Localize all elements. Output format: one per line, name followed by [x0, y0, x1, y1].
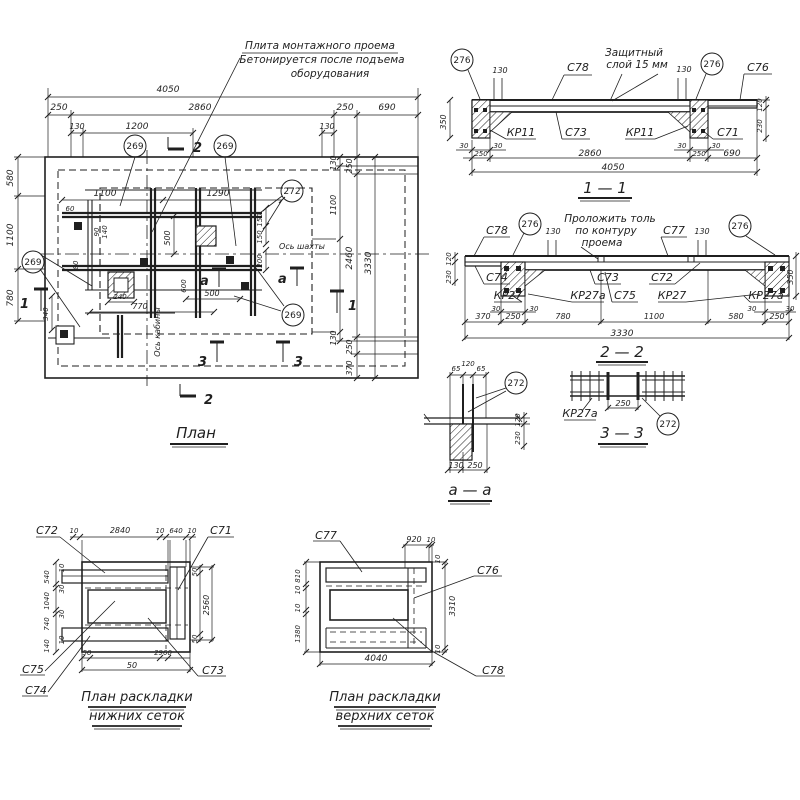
section-a-a: 65 120 65 120 230 130 250 272 а — а	[424, 360, 530, 504]
callout-269: 269	[124, 135, 146, 157]
dim-label: 130	[329, 155, 338, 170]
callout-label: 276	[731, 222, 748, 232]
frame-label-kp27: КР27	[658, 289, 686, 302]
dim-label: 240	[113, 293, 127, 301]
dim-label: 2860	[579, 149, 602, 159]
dim-label: 690	[723, 149, 740, 159]
saa-title: а — а	[449, 481, 492, 499]
callout-272: 272	[281, 180, 303, 202]
mesh-label-c73: С73	[565, 126, 587, 139]
dim-label: 30	[530, 305, 539, 313]
mesh-label-c75: С75	[614, 289, 636, 302]
dim-label: 50	[191, 634, 199, 643]
dim-label: 810	[294, 569, 302, 583]
callout-label: 269	[216, 142, 233, 152]
dim-label: 640	[169, 527, 183, 535]
callout-label: 272	[659, 420, 676, 430]
dim-label: 250	[692, 150, 706, 158]
dim-label: 1100	[329, 195, 338, 215]
dim-label: 3330	[611, 329, 634, 339]
s22-note-line2: по контуру	[575, 225, 637, 237]
mesh-label-c78: С78	[567, 61, 589, 74]
dim-label: 65	[477, 365, 486, 373]
mesh-label-c77: С77	[663, 224, 685, 237]
dim-label: 150	[256, 230, 264, 244]
dim-label: 1100	[6, 223, 16, 246]
section-mark-2: 2	[193, 141, 202, 156]
dim-label: 250	[769, 312, 784, 321]
dim-label: 65	[452, 365, 461, 373]
section-mark-2: 2	[204, 393, 213, 408]
dim-label: 30	[786, 305, 795, 313]
mesh-label-c76: С76	[477, 564, 499, 577]
dim-label: 3330	[364, 251, 374, 274]
section-mark-a: а	[278, 272, 287, 287]
dim-label: 130	[694, 227, 709, 236]
dim-label: 2960	[154, 649, 172, 657]
dim-label: 120	[514, 413, 522, 427]
callout-label: 276	[453, 56, 470, 66]
dim-label: 580	[728, 312, 743, 321]
callout-269: 269	[282, 304, 304, 326]
mesh-label-c72: С72	[36, 524, 58, 537]
dim-label: 150	[256, 213, 264, 227]
mesh-label-c77: С77	[315, 529, 337, 542]
dim-label: 250	[467, 461, 482, 470]
callout-272: 272	[505, 372, 527, 394]
dim-label: 2560	[202, 595, 211, 615]
mesh-label-c71: С71	[210, 524, 232, 537]
dim-label: 1100	[94, 189, 117, 199]
dim-label: 10	[294, 603, 302, 612]
axis-cabin-label: Ось кабины	[153, 307, 162, 356]
lower-mesh-title-line1: План раскладки	[81, 690, 192, 705]
lower-mesh-linework	[62, 562, 190, 652]
dim-label: 30	[492, 305, 501, 313]
frame-label-kp11: КР11	[507, 126, 535, 139]
plan-note-line1: Плита монтажного проема	[245, 40, 395, 52]
dim-label: 250	[615, 399, 630, 408]
mesh-label-c73: С73	[597, 271, 619, 284]
dim-label: 4040	[365, 654, 388, 664]
callout-276: 276	[729, 215, 751, 237]
mesh-label-c78: С78	[486, 224, 508, 237]
dim-label: 2840	[110, 526, 130, 535]
callout-276: 276	[519, 213, 541, 235]
dim-label: 920	[406, 535, 421, 544]
section-2-2: С78 130 Проложить толь по контуру проема…	[445, 213, 799, 365]
callout-276: 276	[451, 49, 473, 71]
upper-mesh-title-line1: План раскладки	[329, 690, 440, 705]
s33-title: 3 — 3	[600, 424, 644, 442]
dim-label: 10	[294, 585, 302, 594]
mesh-label-c76: С76	[747, 61, 769, 74]
dim-label: 30	[58, 609, 66, 618]
dim-label: 340	[42, 307, 50, 321]
drawing-canvas: Плита монтажного проема Бетонируется пос…	[0, 0, 800, 800]
dim-label: 130	[329, 330, 338, 345]
dim-label: 230	[514, 431, 522, 445]
axis-shaft-label: Ось шахты	[279, 242, 325, 251]
dim-label: 130	[319, 122, 334, 131]
frame-label-kp11: КР11	[626, 126, 654, 139]
frame-label-kp27: КР27	[494, 289, 522, 302]
s22-title: 2 — 2	[600, 343, 644, 361]
frame-label-kp27a: КР27а	[570, 289, 605, 302]
callout-label: 269	[126, 142, 143, 152]
mesh-label-c72: С72	[651, 271, 673, 284]
dim-label: 140	[43, 639, 51, 653]
dim-label: 250	[474, 150, 488, 158]
dim-label: 770	[132, 302, 147, 311]
lower-mesh-title-line2: нижних сеток	[89, 709, 185, 724]
dim-label: 1040	[43, 592, 51, 610]
callout-269: 269	[214, 135, 236, 157]
section-1-1: 130 С78 Защитный слой 15 мм 130 С76 КР11…	[439, 47, 772, 201]
mesh-label-c71: С71	[717, 126, 739, 139]
frame-label-kp27a: КР27а	[748, 289, 783, 302]
plan-note-line3: оборудования	[291, 68, 370, 80]
dim-label: 780	[6, 289, 16, 306]
section-mark-1: 1	[20, 297, 29, 312]
s22-note-line3: проема	[582, 237, 623, 249]
dim-label: 350	[439, 114, 448, 129]
dim-label: 370	[475, 312, 490, 321]
dim-label: 10	[58, 563, 66, 572]
dim-label: 130	[448, 461, 463, 470]
plan-note-line2: Бетонируется после подъема	[239, 54, 404, 66]
dim-label: 3310	[448, 596, 457, 616]
section-3-3: КР27а 250 272 3 — 3	[562, 371, 685, 447]
section-mark-3: 3	[198, 355, 207, 370]
dim-label: 250	[505, 312, 520, 321]
dim-label: 10	[427, 536, 436, 544]
s22-note-line1: Проложить толь	[564, 213, 656, 225]
dim-label: 10	[434, 554, 442, 563]
frame-label-kp27a: КР27а	[562, 407, 597, 420]
callout-276: 276	[701, 53, 723, 75]
dim-label: 4050	[157, 85, 180, 95]
dim-label: 50	[191, 567, 199, 576]
callout-label: 272	[283, 187, 300, 197]
dim-label: 350	[786, 269, 795, 284]
dim-label: 230	[756, 119, 764, 133]
dim-label: 10	[58, 635, 66, 644]
upper-mesh-linework	[320, 562, 432, 652]
dim-label: 250	[50, 103, 67, 113]
mesh-label-c73: С73	[202, 664, 224, 677]
mesh-label-c74: С74	[25, 684, 47, 697]
s11-title: 1 — 1	[583, 179, 627, 197]
dim-label: 120	[756, 98, 764, 112]
dim-label: 30	[712, 142, 721, 150]
dim-label: 500	[204, 289, 219, 298]
section-mark-3: 3	[294, 355, 303, 370]
dim-label: 250	[345, 158, 354, 173]
dim-label: 10	[434, 644, 442, 653]
dim-label: 500	[163, 230, 172, 245]
mesh-label-c75: С75	[22, 663, 44, 676]
dim-label: 2860	[189, 103, 212, 113]
dim-label: 130	[676, 65, 691, 74]
dim-label: 120	[445, 252, 453, 266]
callout-269: 269	[22, 251, 44, 273]
dim-label: 30	[678, 142, 687, 150]
dim-label: 1100	[644, 312, 664, 321]
dim-label: 10	[70, 527, 79, 535]
mesh-label-c78: С78	[482, 664, 504, 677]
drawing-svg: Плита монтажного проема Бетонируется пос…	[0, 0, 800, 800]
s11-note-line1: Защитный	[605, 47, 663, 59]
dim-label: 50	[83, 649, 92, 657]
dim-label: 4050	[602, 163, 625, 173]
lower-mesh-plan: С72 10 2840 10 640 10 С71 540 10 30 1040…	[20, 524, 234, 729]
upper-mesh-plan: С77 920 10 С76 С78 810 10 10 1380 10 331…	[294, 529, 505, 729]
dim-label: 780	[555, 312, 570, 321]
mesh-label-c74: С74	[486, 271, 508, 284]
dim-label: 200	[256, 254, 264, 268]
dim-label: 130	[69, 122, 84, 131]
dim-label: 80	[72, 260, 80, 269]
callout-label: 272	[507, 379, 524, 389]
dim-label: 30	[494, 142, 503, 150]
dim-label: 690	[378, 103, 395, 113]
dim-label: 540	[43, 570, 51, 584]
dim-label: 30	[58, 584, 66, 593]
dim-label: 1290	[207, 189, 230, 199]
dim-label: 90	[93, 227, 101, 236]
dim-label: 130	[492, 66, 507, 75]
dim-label: 140	[101, 225, 109, 239]
section-mark-1: 1	[348, 299, 357, 314]
dim-label: 10	[188, 527, 197, 535]
callout-label: 276	[521, 220, 538, 230]
s33-linework	[570, 371, 685, 401]
callout-label: 276	[703, 60, 720, 70]
dim-label: 120	[461, 360, 475, 368]
dim-label: 1200	[126, 122, 149, 132]
dim-label: 230	[445, 270, 453, 284]
plan-dimension-lines	[14, 88, 421, 381]
dim-label: 250	[345, 339, 354, 354]
upper-mesh-title-line2: верхних сеток	[336, 709, 435, 724]
dim-label: 2460	[345, 246, 355, 269]
dim-label: 580	[6, 169, 16, 186]
dim-label: 600	[180, 279, 188, 293]
dim-label: 130	[545, 227, 560, 236]
saa-linework	[424, 384, 522, 460]
callout-272: 272	[657, 413, 679, 435]
callout-label: 269	[24, 258, 41, 268]
dim-label: 50	[127, 661, 137, 670]
dim-label: 1380	[294, 625, 302, 643]
dim-label: 370	[345, 360, 354, 375]
dim-label: 30	[460, 142, 469, 150]
dim-label: 30	[748, 305, 757, 313]
dim-label: 740	[43, 617, 51, 631]
dim-label: 10	[156, 527, 165, 535]
plan-view: Плита монтажного проема Бетонируется пос…	[6, 40, 430, 447]
plan-title: План	[176, 424, 216, 442]
s11-note-line2: слой 15 мм	[606, 59, 668, 71]
dim-label: 60	[66, 205, 75, 213]
callout-label: 269	[284, 311, 301, 321]
dim-label: 250	[336, 103, 353, 113]
section-mark-a: а	[200, 274, 209, 289]
